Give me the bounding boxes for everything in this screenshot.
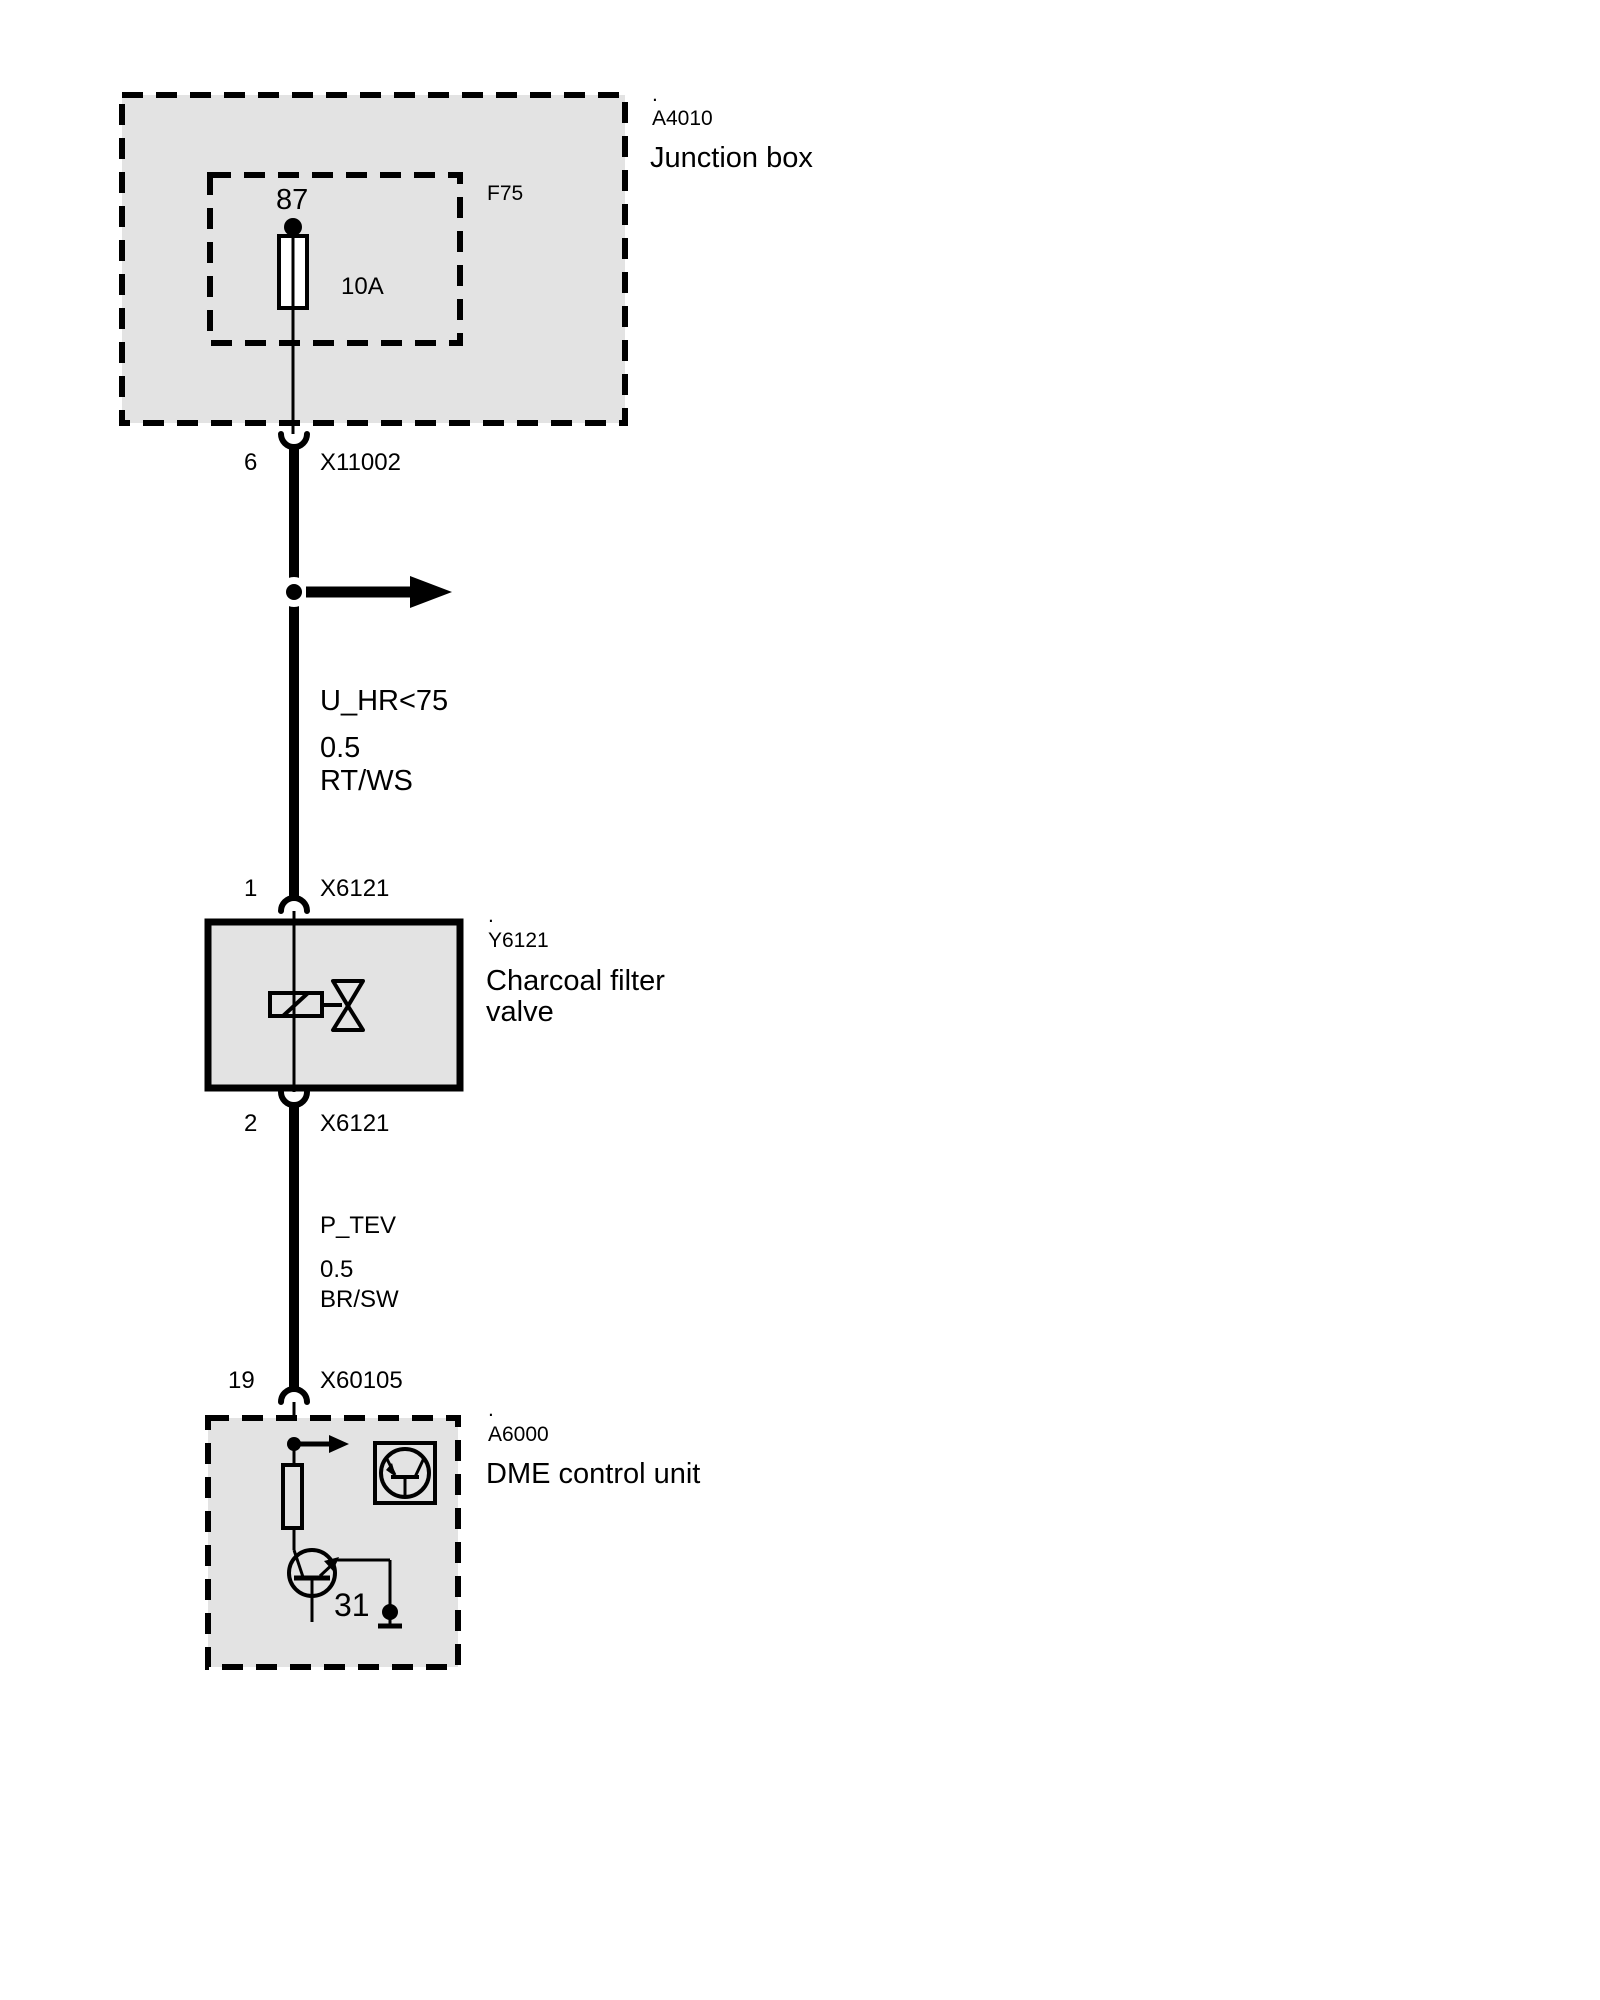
pin-number-19: 19	[228, 1368, 255, 1394]
pin-number-1: 1	[244, 876, 257, 902]
connector-id-x6121-in: X6121	[320, 876, 389, 902]
pin-number-2: 2	[244, 1111, 257, 1137]
connector-id-x6121-out: X6121	[320, 1111, 389, 1137]
wire-lower-signal: P_TEV	[320, 1213, 396, 1239]
fuse-rating: 10A	[341, 274, 384, 300]
dme-dot: .	[488, 1399, 494, 1422]
wire-lower-cross-section: 0.5	[320, 1257, 353, 1283]
connector-id-x60105: X60105	[320, 1368, 403, 1394]
dme-id: A6000	[488, 1424, 549, 1447]
connector-id-x11002: X11002	[320, 450, 401, 476]
junction-box-dot: .	[652, 84, 658, 107]
valve-id: Y6121	[488, 930, 549, 953]
junction-box-title: Junction box	[650, 143, 813, 174]
valve-dot: .	[488, 905, 494, 928]
pin-number-6: 6	[244, 450, 257, 476]
valve-title: Charcoal filter valve	[486, 966, 701, 1029]
wire-upper-cross-section: 0.5	[320, 733, 360, 764]
dme-ground-terminal: 31	[334, 1588, 370, 1623]
fuse-terminal: 87	[276, 185, 308, 216]
connector-socket-icon-x11002	[281, 434, 307, 447]
wire-branch-node	[279, 577, 309, 607]
wiring-diagram-page: . A4010 Junction box F75 87 10A 6 X11002…	[0, 0, 1600, 2000]
junction-box-id: A4010	[652, 108, 713, 131]
fuse-box-id: F75	[487, 183, 523, 206]
wire-continuation-arrow-icon	[306, 576, 452, 608]
wiring-diagram-graphics	[0, 0, 1600, 2000]
junction-box-outline	[122, 95, 625, 423]
wire-lower-color-code: BR/SW	[320, 1287, 399, 1313]
wire-upper-color-code: RT/WS	[320, 766, 413, 797]
dme-title: DME control unit	[486, 1459, 700, 1490]
wire-upper-signal: U_HR<75	[320, 686, 448, 717]
connector-socket-icon-x6121-pin1	[281, 898, 307, 922]
